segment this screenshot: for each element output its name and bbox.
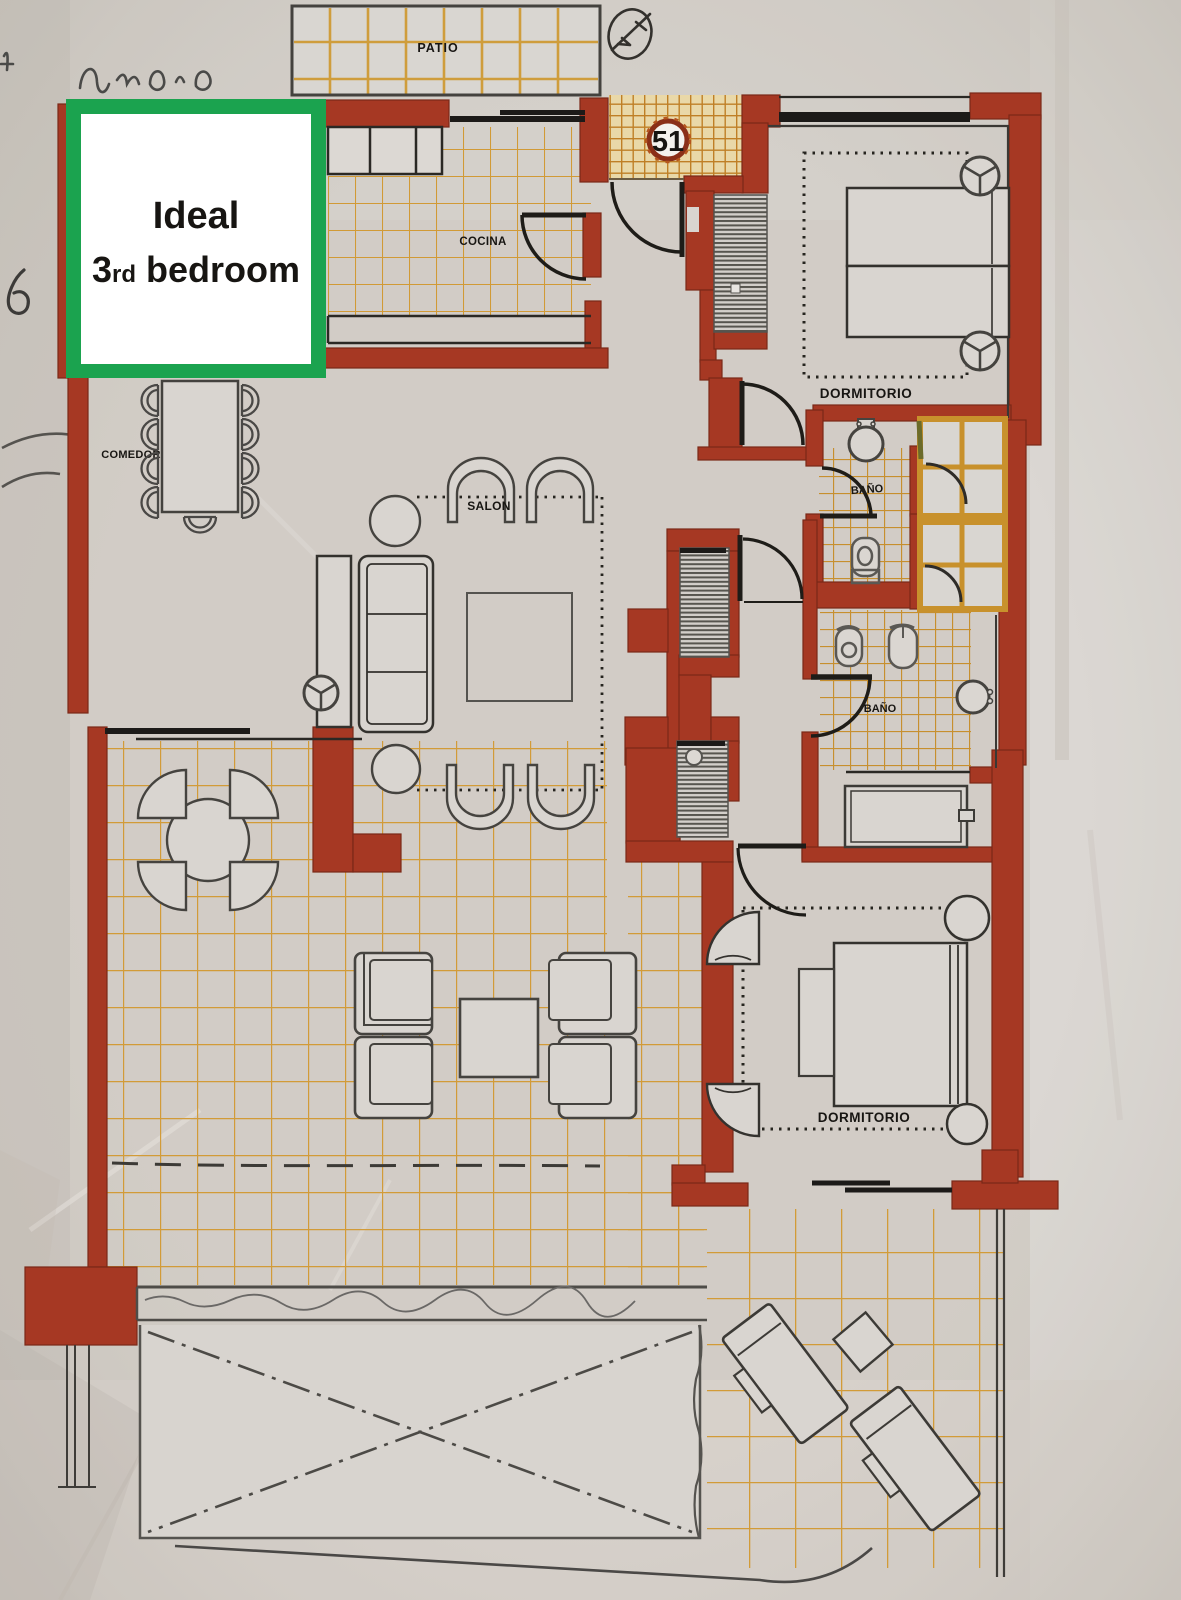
svg-text:SALON: SALON bbox=[467, 499, 511, 513]
svg-text:BAÑO: BAÑO bbox=[864, 702, 897, 715]
svg-text:PATIO: PATIO bbox=[417, 41, 458, 55]
svg-text:DORMITORIO: DORMITORIO bbox=[820, 386, 913, 401]
svg-text:COCINA: COCINA bbox=[459, 236, 506, 248]
svg-text:DORMITORIO: DORMITORIO bbox=[818, 1110, 911, 1125]
svg-text:51: 51 bbox=[652, 126, 684, 158]
svg-text:Ideal: Ideal bbox=[153, 195, 240, 237]
